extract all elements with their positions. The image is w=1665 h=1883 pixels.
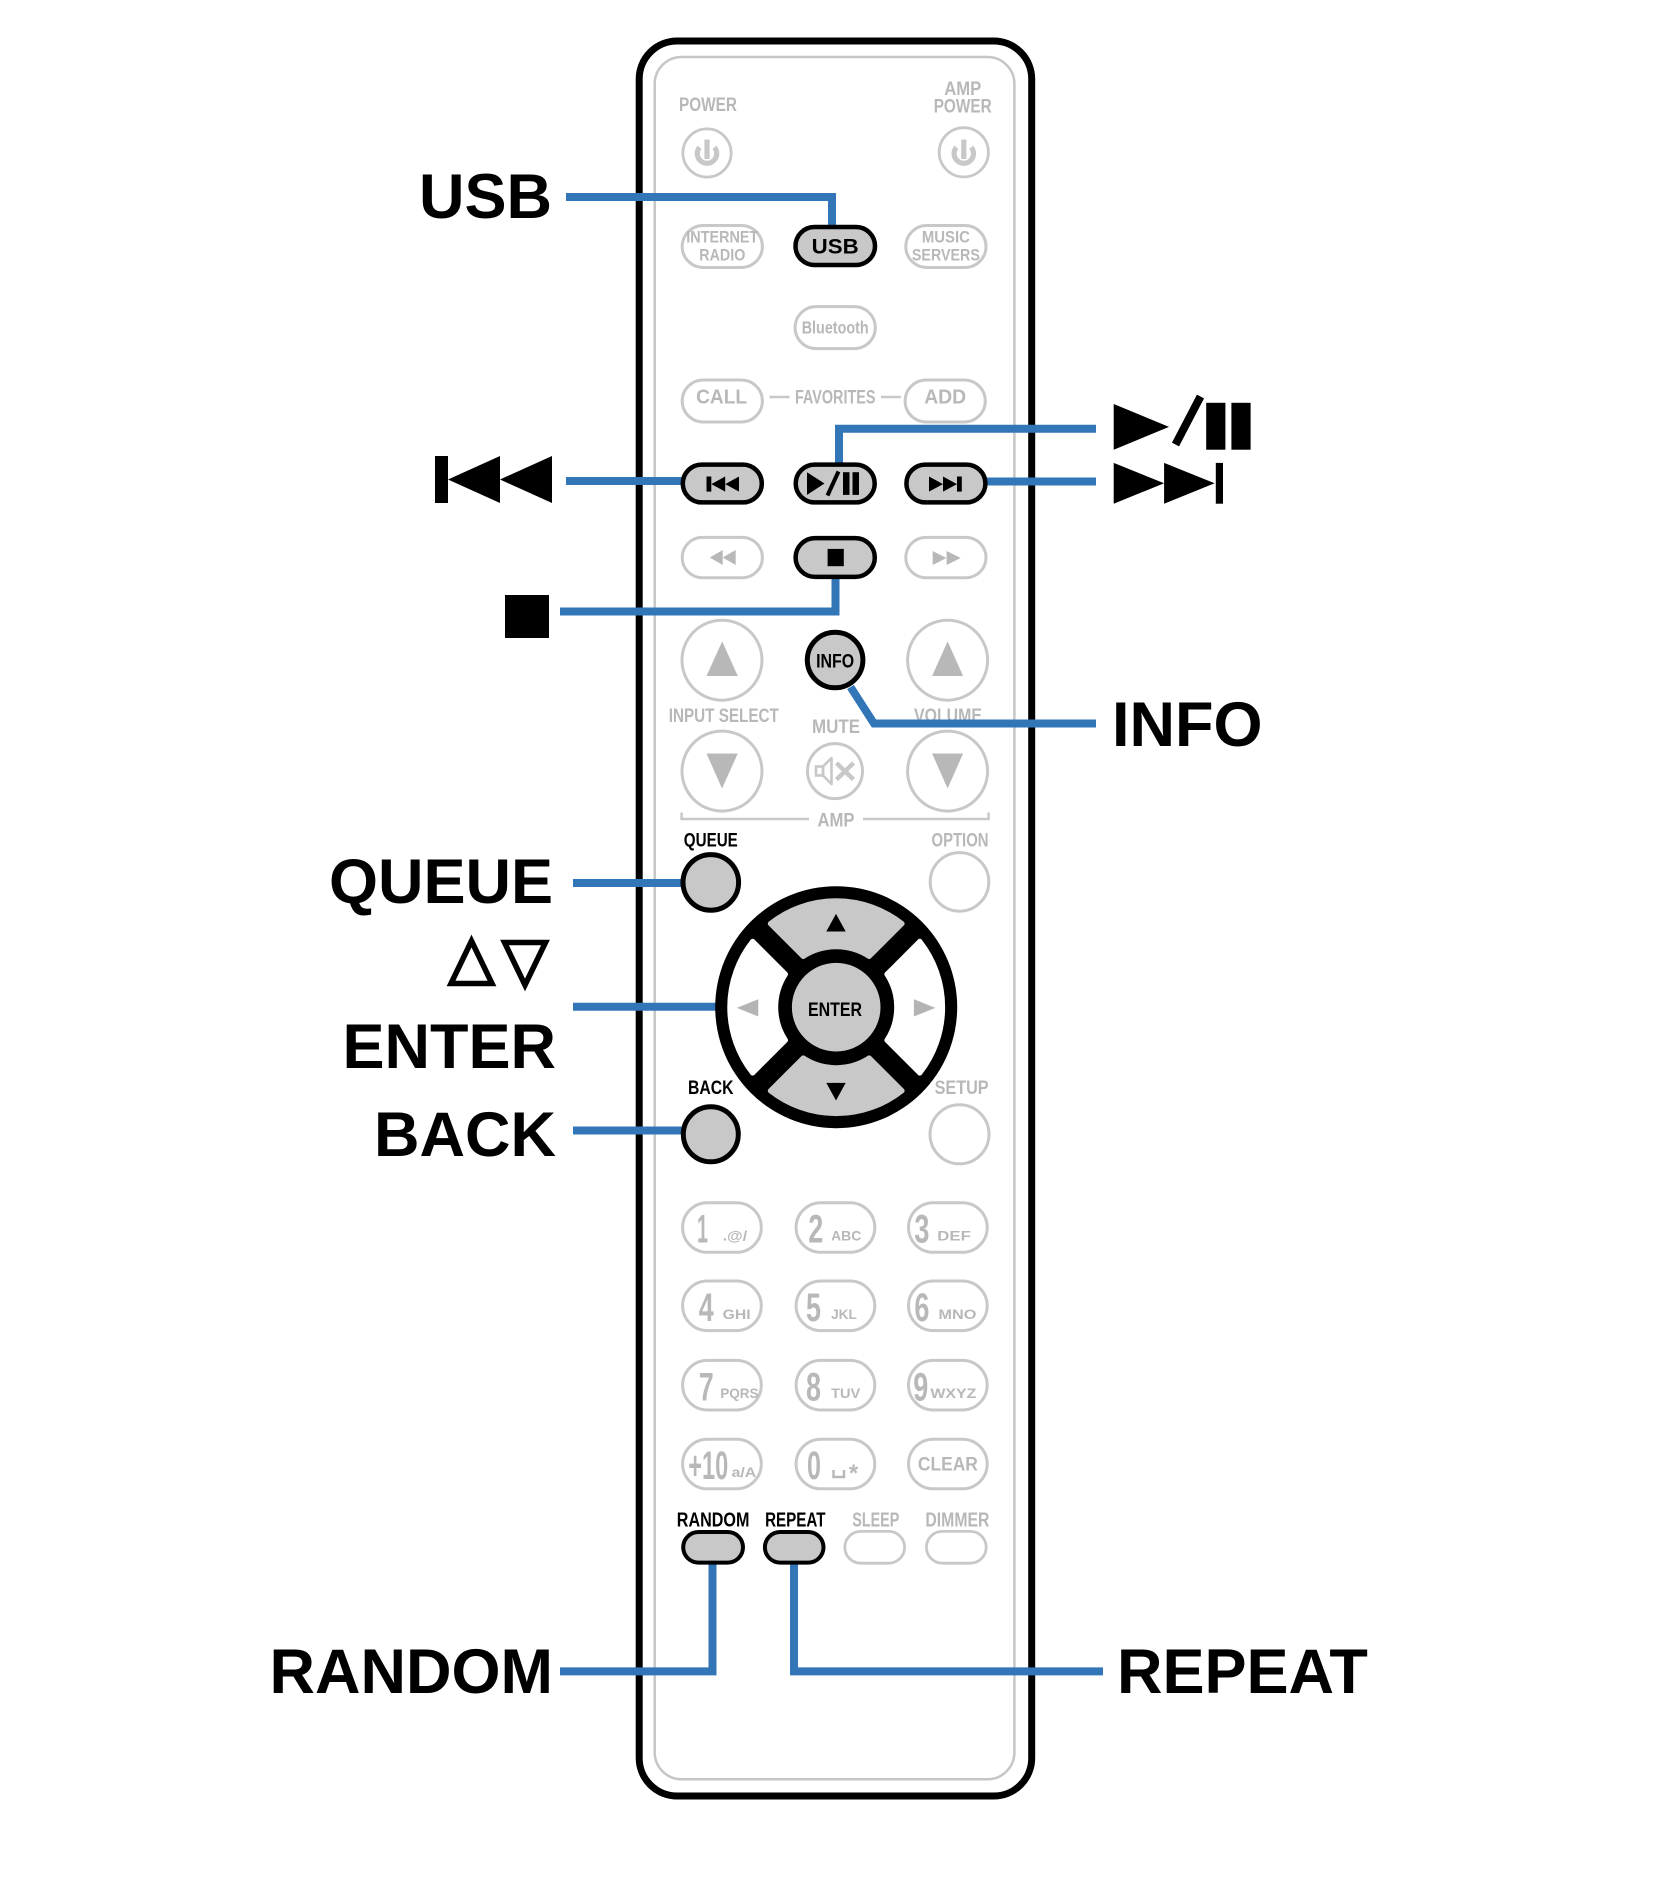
svg-text:AMP: AMP — [818, 811, 855, 832]
svg-text:6: 6 — [914, 1286, 929, 1330]
svg-text:RANDOM: RANDOM — [270, 1637, 553, 1707]
svg-text:ADD: ADD — [924, 387, 966, 409]
svg-text:USB: USB — [419, 162, 552, 232]
svg-text:2: 2 — [808, 1208, 823, 1252]
svg-text:ENTER: ENTER — [342, 1012, 556, 1082]
svg-text:MUTE: MUTE — [812, 717, 860, 738]
svg-text:a/A: a/A — [732, 1464, 757, 1480]
svg-text:QUEUE: QUEUE — [684, 831, 738, 852]
svg-text:RANDOM: RANDOM — [677, 1510, 750, 1532]
svg-text:+10: +10 — [688, 1444, 728, 1488]
svg-text:9: 9 — [913, 1365, 928, 1409]
svg-text:REPEAT: REPEAT — [1117, 1637, 1368, 1707]
svg-text:8: 8 — [806, 1365, 821, 1409]
svg-text:BACK: BACK — [374, 1100, 556, 1170]
svg-text:SERVERS: SERVERS — [912, 247, 980, 265]
svg-text:GHI: GHI — [723, 1306, 751, 1322]
svg-text:CLEAR: CLEAR — [918, 1455, 978, 1476]
svg-text:OPTION: OPTION — [932, 831, 989, 852]
svg-text:REPEAT: REPEAT — [765, 1510, 825, 1532]
svg-text:MNO: MNO — [938, 1306, 976, 1322]
svg-text:7: 7 — [699, 1365, 714, 1409]
svg-text:POWER: POWER — [679, 95, 737, 116]
svg-text:FAVORITES: FAVORITES — [795, 388, 876, 409]
svg-text:.@/: .@/ — [723, 1228, 748, 1244]
svg-text:INFO: INFO — [1112, 690, 1263, 760]
svg-text:*: * — [849, 1460, 859, 1487]
svg-text:PQRS: PQRS — [720, 1385, 758, 1401]
svg-text:INPUT SELECT: INPUT SELECT — [669, 706, 779, 727]
svg-text:QUEUE: QUEUE — [329, 847, 553, 917]
svg-text:DIMMER: DIMMER — [925, 1510, 989, 1532]
svg-text:WXYZ: WXYZ — [930, 1385, 976, 1401]
svg-text:4: 4 — [699, 1286, 715, 1330]
svg-text:JKL: JKL — [831, 1306, 857, 1322]
svg-text:ENTER: ENTER — [808, 1000, 862, 1021]
svg-text:BACK: BACK — [688, 1078, 734, 1099]
svg-text:SETUP: SETUP — [935, 1078, 989, 1099]
svg-text:POWER: POWER — [934, 97, 992, 118]
svg-text:RADIO: RADIO — [699, 247, 745, 265]
svg-text:0: 0 — [807, 1444, 821, 1488]
svg-text:1: 1 — [697, 1208, 708, 1252]
svg-text:CALL: CALL — [696, 387, 747, 409]
svg-text:MUSIC: MUSIC — [922, 229, 970, 247]
svg-text:3: 3 — [914, 1208, 929, 1252]
svg-text:USB: USB — [812, 236, 859, 259]
svg-text:TUV: TUV — [831, 1385, 861, 1401]
svg-text:ABC: ABC — [831, 1228, 861, 1244]
svg-text:5: 5 — [806, 1286, 821, 1330]
svg-text:Bluetooth: Bluetooth — [802, 318, 869, 338]
svg-text:SLEEP: SLEEP — [852, 1510, 899, 1532]
svg-text:INFO: INFO — [816, 651, 854, 672]
svg-text:DEF: DEF — [937, 1228, 971, 1244]
svg-text:INTERNET: INTERNET — [686, 229, 758, 247]
